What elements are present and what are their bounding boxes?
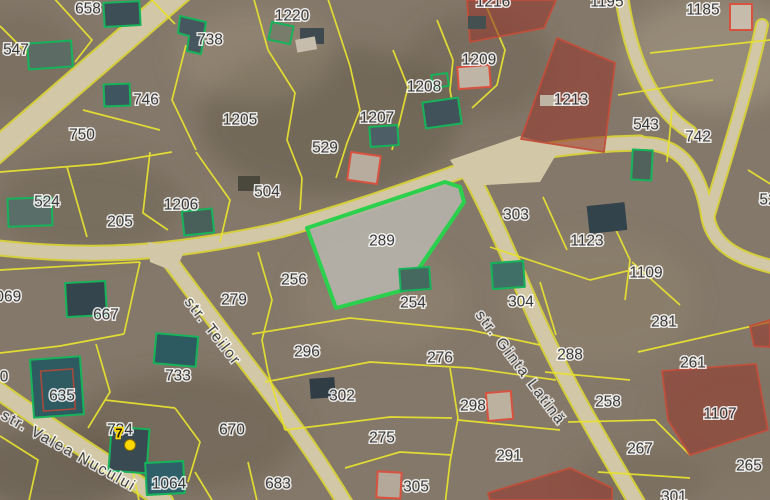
parcel-label-289: 289 bbox=[369, 233, 395, 250]
building-red bbox=[347, 152, 381, 184]
parcel-label-524: 524 bbox=[34, 194, 60, 211]
parcel-label-683: 683 bbox=[265, 476, 291, 493]
parcel-label-1216: 1216 bbox=[476, 0, 510, 11]
parcel-label-667: 667 bbox=[93, 307, 119, 324]
parcel-label-635: 635 bbox=[49, 388, 75, 405]
marker-dot bbox=[125, 440, 136, 451]
building-red bbox=[376, 471, 401, 498]
building bbox=[422, 98, 461, 129]
parcel-label-258: 258 bbox=[595, 394, 621, 411]
parcel-label-733: 733 bbox=[165, 368, 191, 385]
parcel-label-504: 504 bbox=[254, 184, 280, 201]
building bbox=[154, 333, 198, 367]
building bbox=[103, 1, 140, 27]
parcel-label-261: 261 bbox=[680, 355, 706, 372]
parcel-label-738: 738 bbox=[197, 32, 223, 49]
parcel-label-279: 279 bbox=[221, 292, 247, 309]
parcel-label-1109: 1109 bbox=[629, 265, 662, 282]
parcel-label-547: 547 bbox=[3, 42, 29, 59]
parcel-label-1195: 1195 bbox=[590, 0, 623, 11]
restricted-parcel-edge bbox=[750, 320, 770, 347]
building bbox=[268, 22, 293, 44]
parcel-label-1185: 1185 bbox=[686, 2, 719, 19]
building bbox=[369, 125, 398, 147]
parcel-label-543: 543 bbox=[633, 117, 659, 134]
parcel-label-254: 254 bbox=[400, 295, 426, 312]
parcel-label-52: 52 bbox=[759, 192, 770, 209]
parcel-label-1207: 1207 bbox=[360, 110, 394, 127]
marker-number: 7 bbox=[115, 426, 122, 441]
parcel-label-529: 529 bbox=[312, 140, 338, 157]
building bbox=[27, 40, 73, 69]
parcel-label-742: 742 bbox=[685, 129, 711, 146]
parcel-label-296: 296 bbox=[294, 344, 320, 361]
map-canvas[interactable]: 6581220738547746750120552912071208120912… bbox=[0, 0, 770, 500]
parcel-label-658: 658 bbox=[75, 1, 101, 18]
parcel-label-288: 288 bbox=[557, 347, 583, 364]
parcel-label-276: 276 bbox=[427, 350, 453, 367]
parcel-label-1205: 1205 bbox=[223, 112, 257, 129]
parcel-label-305: 305 bbox=[403, 479, 429, 496]
parcel-label-301: 301 bbox=[661, 489, 687, 500]
road-junction bbox=[450, 136, 560, 186]
parcel-label-1064: 1064 bbox=[152, 476, 187, 493]
parcel-label-750: 750 bbox=[69, 127, 95, 144]
building-red bbox=[730, 4, 752, 30]
parcel-label-275: 275 bbox=[369, 430, 395, 447]
parcel-label-256: 256 bbox=[281, 272, 307, 289]
parcel-label-1206: 1206 bbox=[164, 197, 198, 214]
parcel-label-1208: 1208 bbox=[407, 79, 441, 96]
building-red bbox=[486, 391, 513, 421]
street-labels: str. Teilor str. Ginta Latină str. Valea… bbox=[0, 294, 569, 495]
building bbox=[631, 149, 653, 180]
parcel-label-267: 267 bbox=[627, 441, 653, 458]
parcel-label-265: 265 bbox=[736, 458, 762, 475]
building-roof bbox=[587, 202, 628, 234]
parcel-label-298: 298 bbox=[460, 398, 486, 415]
building-red bbox=[457, 65, 490, 89]
parcel-label-205: 205 bbox=[107, 214, 133, 231]
parcel-label-1213: 1213 bbox=[554, 92, 588, 109]
parcel-label-302: 302 bbox=[329, 388, 355, 405]
parcel-label-670: 670 bbox=[219, 422, 245, 439]
building bbox=[491, 261, 525, 289]
parcel-label-281: 281 bbox=[651, 314, 677, 331]
parcel-label-291: 291 bbox=[496, 448, 522, 465]
parcel-label-303: 303 bbox=[503, 207, 529, 224]
building-roof bbox=[468, 16, 486, 29]
building bbox=[104, 84, 131, 107]
parcel-label-1107: 1107 bbox=[703, 406, 736, 423]
parcel-label-304: 304 bbox=[508, 294, 534, 311]
parcel-label-1220: 1220 bbox=[275, 8, 310, 25]
building bbox=[399, 267, 430, 291]
parcel-label-0: 0 bbox=[0, 369, 9, 386]
parcel-label-746: 746 bbox=[133, 92, 159, 109]
parcel-label-1209: 1209 bbox=[462, 52, 496, 69]
parcel-label-1069: 1069 bbox=[0, 289, 21, 306]
parcel-label-1123: 1123 bbox=[570, 233, 603, 250]
